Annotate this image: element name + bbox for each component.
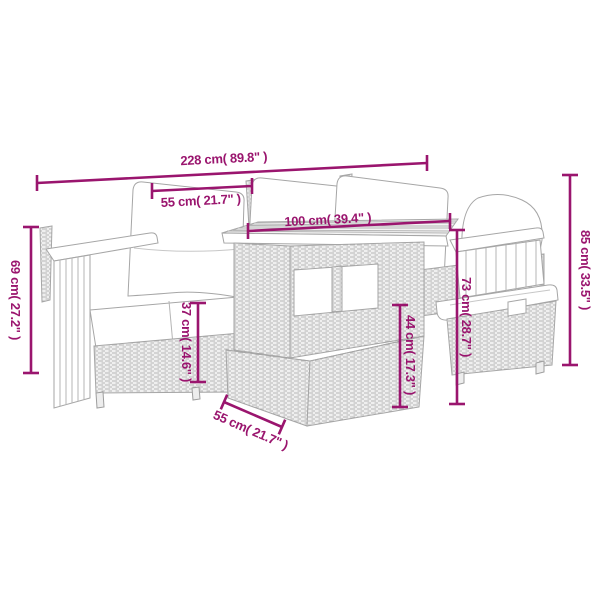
dimension-diagram: 228 cm( 89.8" ) 55 cm( 21.7" ) 100 cm( 3… [0,0,600,600]
dim-back-height-label: 73 cm( 28.7" ) [459,277,474,357]
dim-total-height-label: 85 cm( 33.5" ) [578,230,593,310]
dim-table-height-label: 44 cm( 17.3" ) [403,315,418,395]
furniture-dimension-illustration: 228 cm( 89.8" ) 55 cm( 21.7" ) 100 cm( 3… [0,0,600,600]
ottoman [436,285,558,385]
dim-seat-height-label: 37 cm( 14.6" ) [179,302,194,382]
sofa-seat [90,297,243,408]
dim-arm-height-label: 69 cm( 27.2" ) [8,260,23,340]
